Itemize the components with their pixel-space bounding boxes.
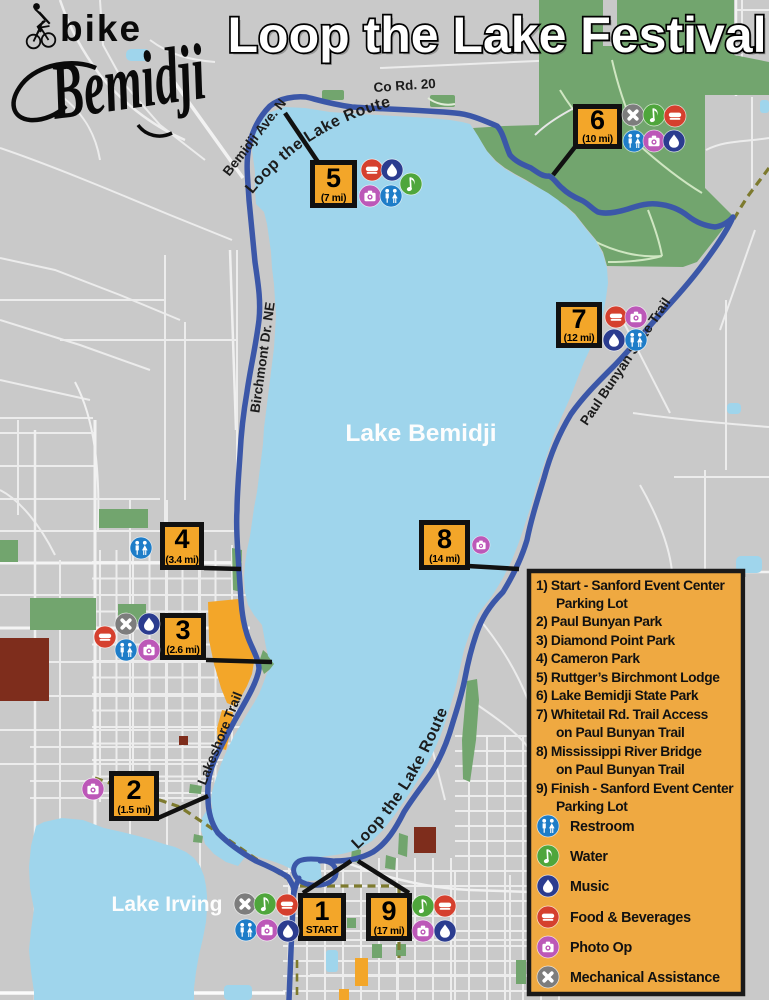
svg-text:1) Start - Sanford Event Cente: 1) Start - Sanford Event Center (536, 578, 725, 593)
svg-text:Photo Op: Photo Op (570, 940, 632, 956)
svg-text:(10 mi): (10 mi) (582, 134, 613, 145)
svg-text:(7 mi): (7 mi) (321, 193, 346, 204)
svg-text:(14 mi): (14 mi) (429, 554, 460, 565)
svg-text:Music: Music (570, 879, 609, 895)
svg-text:Lake Irving: Lake Irving (112, 893, 223, 916)
svg-text:Loop the Lake Festival: Loop the Lake Festival (227, 7, 766, 63)
svg-text:Parking Lot: Parking Lot (556, 799, 628, 814)
svg-text:Food & Beverages: Food & Beverages (570, 910, 691, 926)
svg-text:8: 8 (437, 524, 452, 554)
svg-text:(12 mi): (12 mi) (564, 333, 595, 344)
svg-text:6: 6 (590, 105, 605, 135)
svg-text:on Paul Bunyan Trail: on Paul Bunyan Trail (556, 762, 684, 777)
svg-text:Restroom: Restroom (570, 819, 634, 835)
svg-text:9: 9 (381, 896, 396, 926)
svg-text:1: 1 (314, 896, 329, 926)
svg-text:2) Paul Bunyan Park: 2) Paul Bunyan Park (536, 614, 663, 629)
svg-text:(1.5 mi): (1.5 mi) (117, 805, 150, 816)
svg-text:Mechanical Assistance: Mechanical Assistance (570, 970, 720, 986)
svg-text:4) Cameron Park: 4) Cameron Park (536, 651, 640, 666)
svg-text:7: 7 (571, 304, 586, 334)
svg-text:4: 4 (174, 524, 189, 554)
svg-text:(2.6 mi): (2.6 mi) (166, 645, 199, 656)
svg-text:8) Mississippi River Bridge: 8) Mississippi River Bridge (536, 744, 702, 759)
svg-text:Lake Bemidji: Lake Bemidji (345, 420, 496, 447)
svg-text:7) Whitetail Rd. Trail Access: 7) Whitetail Rd. Trail Access (536, 707, 709, 722)
svg-text:3: 3 (175, 615, 190, 645)
svg-text:9) Finish - Sanford Event Cent: 9) Finish - Sanford Event Center (536, 781, 734, 796)
svg-text:START: START (306, 925, 339, 936)
svg-text:(17 mi): (17 mi) (374, 926, 405, 937)
svg-text:5) Ruttger’s Birchmont Lodge: 5) Ruttger’s Birchmont Lodge (536, 670, 720, 685)
svg-text:Water: Water (570, 849, 608, 865)
svg-text:2: 2 (126, 775, 141, 805)
svg-text:Parking Lot: Parking Lot (556, 596, 628, 611)
svg-text:5: 5 (326, 163, 341, 193)
svg-text:on Paul Bunyan Trail: on Paul Bunyan Trail (556, 725, 684, 740)
svg-text:3) Diamond Point Park: 3) Diamond Point Park (536, 633, 676, 648)
svg-text:6) Lake Bemidji State Park: 6) Lake Bemidji State Park (536, 688, 699, 703)
svg-text:(3.4 mi): (3.4 mi) (165, 555, 198, 566)
